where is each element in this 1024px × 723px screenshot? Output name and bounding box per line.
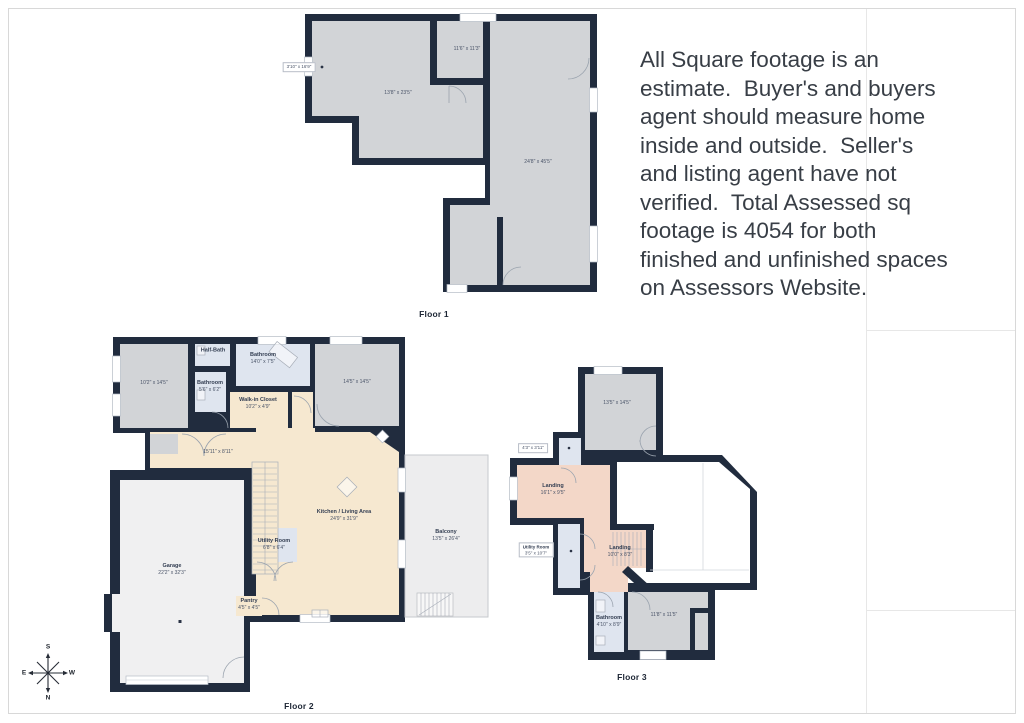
floor1-caption: Floor 1 [419, 309, 449, 319]
disclaimer-line: verified. Total Assessed sq [640, 189, 948, 218]
floor3-plan [510, 367, 758, 661]
floor2-halfbath-label: Half-Bath [201, 347, 225, 354]
floor3-utility-label: Utility Room3'5" x 10'7" [519, 542, 554, 557]
floor2-plan [104, 337, 488, 693]
compass-rose [28, 653, 68, 693]
floor2-kitchen-label: Kitchen / Living Area24'9" x 31'9" [317, 509, 372, 523]
disclaimer-text: All Square footage is an estimate. Buyer… [640, 46, 948, 303]
floor1-room-main-dims: 24'8" x 45'5" [524, 159, 551, 166]
floor2-balcony-label: Balcony13'5" x 26'4" [432, 529, 459, 543]
compass-east-label: E [22, 670, 26, 677]
floor3-room-top-dims: 13'5" x 14'5" [603, 400, 630, 407]
floor2-pantry-label: Pantry4'5" x 4'5" [238, 598, 260, 612]
floor3-room-br-dims: 11'8" x 11'5" [651, 612, 678, 619]
floor1-room-left-dims: 13'8" x 23'5" [384, 90, 411, 97]
disclaimer-line: finished and unfinished spaces [640, 246, 948, 275]
floor2-caption: Floor 2 [284, 701, 314, 711]
floor2-bed-right-dims: 14'5" x 14'5" [343, 379, 370, 386]
compass-south-label: S [46, 644, 50, 651]
floor2-bathroom2-label: Bathroom5'6" x 6'2" [197, 380, 223, 394]
disclaimer-line: footage is 4054 for both [640, 217, 948, 246]
floor3-outside-label: 4'3" x 3'11" [518, 443, 548, 453]
compass-west-label: W [69, 670, 75, 677]
floor3-landing1-label: Landing16'1" x 9'5" [541, 483, 566, 497]
floor2-utility-label: Utility Room6'8" x 6'4" [258, 538, 290, 552]
floor2-hall-dims: 15'11" x 8'11" [203, 449, 232, 456]
disclaimer-line: on Assessors Website. [640, 274, 948, 303]
floorplan-page: All Square footage is an estimate. Buyer… [0, 0, 1024, 723]
floor2-garage-label: Garage22'2" x 32'3" [158, 563, 185, 577]
floor1-outside-label: 3'10" x 16'9" [283, 62, 316, 72]
floor3-landing2-label: Landing10'0" x 8'3" [608, 545, 633, 559]
disclaimer-line: and listing agent have not [640, 160, 948, 189]
floor3-caption: Floor 3 [617, 672, 647, 682]
floor2-bathroom1-label: Bathroom14'0" x 7'5" [250, 352, 276, 366]
floor1-room-mid-dims: 11'6" x 11'3" [454, 46, 481, 53]
floor2-closet-label: Walk-in Closet10'2" x 4'9" [239, 397, 277, 411]
floor3-bathroom-label: Bathroom4'10" x 8'9" [596, 615, 622, 629]
disclaimer-line: estimate. Buyer's and buyers [640, 75, 948, 104]
floor1-plan [305, 14, 598, 293]
disclaimer-line: agent should measure home [640, 103, 948, 132]
disclaimer-line: inside and outside. Seller's [640, 132, 948, 161]
floor2-bed-left-dims: 10'2" x 14'5" [140, 380, 167, 387]
compass-north-label: N [46, 695, 51, 702]
disclaimer-line: All Square footage is an [640, 46, 948, 75]
